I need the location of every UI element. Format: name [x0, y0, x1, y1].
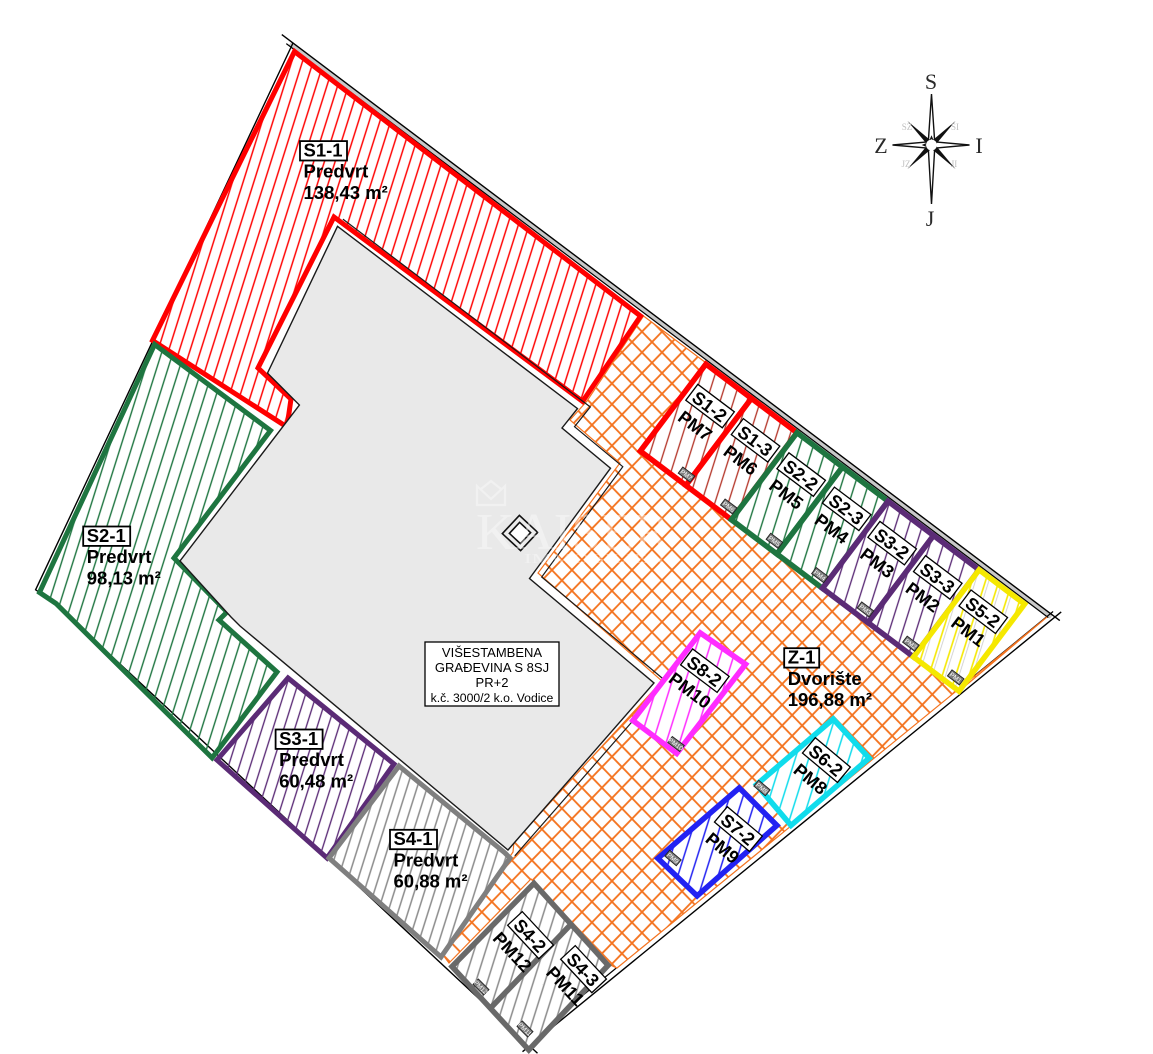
svg-text:JZ: JZ: [902, 159, 911, 169]
svg-text:S1-1: S1-1: [304, 139, 343, 160]
svg-text:138,43 m²: 138,43 m²: [304, 182, 388, 203]
svg-text:PR+2: PR+2: [476, 675, 509, 690]
svg-text:J: J: [926, 206, 935, 231]
svg-text:98,13 m²: 98,13 m²: [87, 567, 161, 588]
svg-text:VIŠESTAMBENA: VIŠESTAMBENA: [442, 645, 543, 660]
svg-text:Z-1: Z-1: [788, 647, 816, 668]
svg-text:GRAĐEVINA S 8SJ: GRAĐEVINA S 8SJ: [435, 660, 549, 675]
svg-text:IMMOBILIEN: IMMOBILIEN: [524, 552, 664, 567]
svg-text:Dvorište: Dvorište: [788, 668, 862, 689]
svg-text:S: S: [925, 69, 937, 94]
svg-text:k.č. 3000/2 k.o. Vodice: k.č. 3000/2 k.o. Vodice: [431, 691, 554, 705]
svg-text:Z: Z: [874, 133, 887, 158]
svg-text:Predvrt: Predvrt: [87, 546, 152, 567]
svg-text:SZ: SZ: [902, 122, 913, 132]
svg-text:60,48 m²: 60,48 m²: [279, 770, 353, 791]
svg-text:JI: JI: [951, 159, 958, 169]
svg-text:Predvrt: Predvrt: [304, 161, 369, 182]
svg-text:Predvrt: Predvrt: [394, 849, 459, 870]
svg-text:I: I: [975, 133, 982, 158]
svg-text:SI: SI: [951, 122, 959, 132]
svg-text:S3-1: S3-1: [279, 728, 318, 749]
svg-text:S4-1: S4-1: [394, 828, 433, 849]
svg-text:196,88 m²: 196,88 m²: [788, 689, 872, 710]
svg-text:Predvrt: Predvrt: [279, 749, 344, 770]
svg-text:60,88 m²: 60,88 m²: [394, 871, 468, 892]
svg-text:S2-1: S2-1: [87, 525, 126, 546]
